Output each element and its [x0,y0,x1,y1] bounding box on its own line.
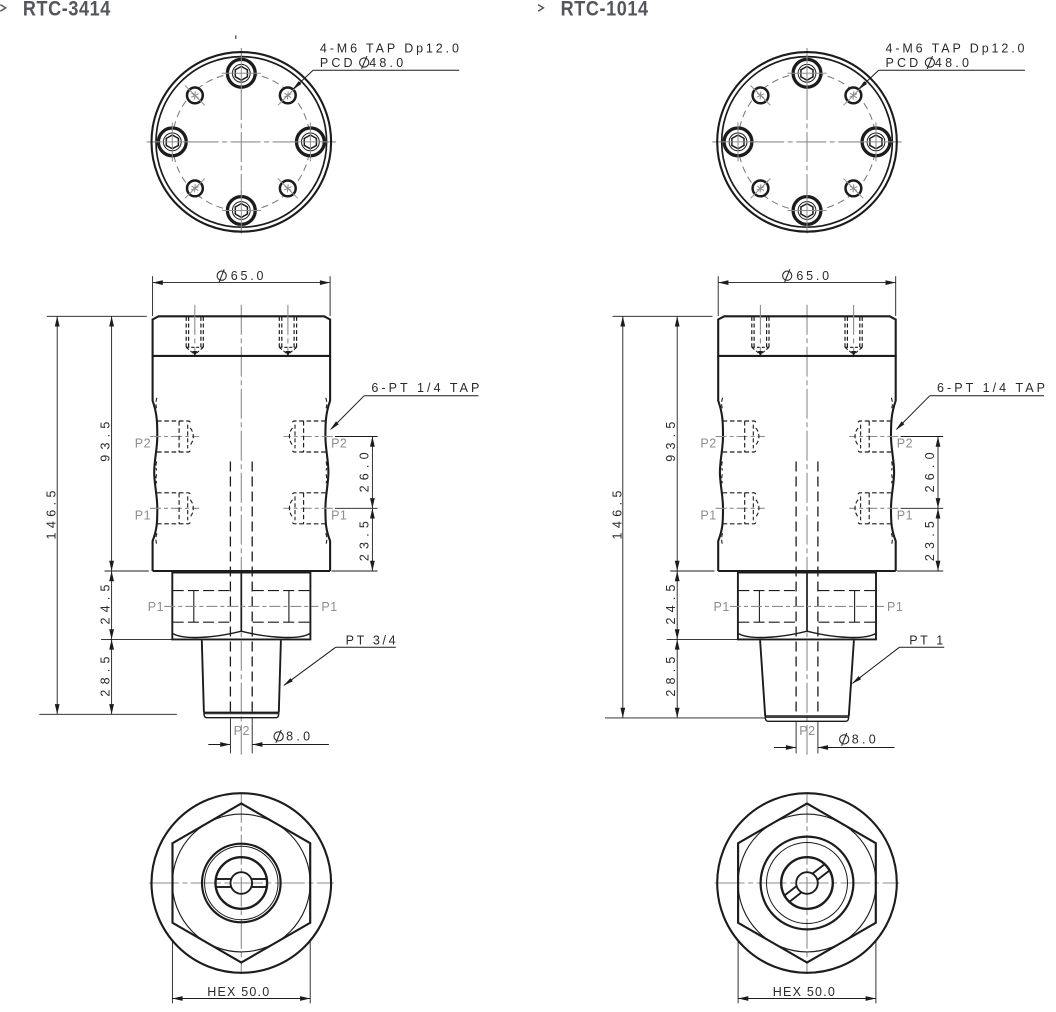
svg-text:146.5: 146.5 [610,490,624,539]
svg-text:HEX 50.0: HEX 50.0 [207,985,269,999]
svg-text:65.0: 65.0 [796,269,829,283]
svg-text:P1: P1 [135,508,151,522]
svg-text:93.5: 93.5 [99,422,113,462]
svg-text:23.5: 23.5 [358,521,372,561]
svg-text:P2: P2 [234,724,250,738]
svg-text:146.5: 146.5 [45,490,59,539]
svg-text:P1: P1 [148,600,164,614]
svg-text:8.0: 8.0 [852,733,876,747]
svg-text:P2: P2 [799,724,815,738]
svg-text:PT 3/4: PT 3/4 [346,634,396,648]
svg-text:6-PT 1/4 TAP: 6-PT 1/4 TAP [937,381,1045,395]
svg-text:P2: P2 [700,437,716,451]
svg-text:4-M6 TAP Dp12.0: 4-M6 TAP Dp12.0 [320,41,459,55]
svg-text:93.5: 93.5 [664,422,678,462]
svg-text:HEX 50.0: HEX 50.0 [773,985,835,999]
svg-text:P1: P1 [897,508,913,522]
svg-text:P1: P1 [700,508,716,522]
svg-text:P2: P2 [331,437,347,451]
svg-text:48.0: 48.0 [369,56,403,70]
svg-text:26.0: 26.0 [923,452,937,492]
svg-text:23.5: 23.5 [923,521,937,561]
svg-text:PCD: PCD [320,56,353,70]
svg-text:P1: P1 [331,508,347,522]
svg-text:26.0: 26.0 [358,452,372,492]
svg-text:RTC-3414: RTC-3414 [23,0,111,21]
svg-text:P1: P1 [321,600,337,614]
svg-text:P2: P2 [897,437,913,451]
svg-text:P1: P1 [887,600,903,614]
svg-text:PT 1: PT 1 [909,634,943,648]
svg-text:28.5: 28.5 [99,657,113,697]
svg-text:PCD: PCD [886,56,919,70]
svg-text:24.5: 24.5 [99,584,113,624]
svg-text:4-M6 TAP Dp12.0: 4-M6 TAP Dp12.0 [886,41,1025,55]
svg-text:P2: P2 [135,437,151,451]
svg-text:P1: P1 [714,600,730,614]
svg-text:RTC-1014: RTC-1014 [561,0,649,21]
svg-text:65.0: 65.0 [231,269,264,283]
svg-text:24.5: 24.5 [664,584,678,624]
svg-text:6-PT 1/4 TAP: 6-PT 1/4 TAP [371,381,479,395]
svg-text:8.0: 8.0 [286,730,310,744]
svg-text:48.0: 48.0 [935,56,969,70]
svg-text:28.5: 28.5 [664,657,678,697]
